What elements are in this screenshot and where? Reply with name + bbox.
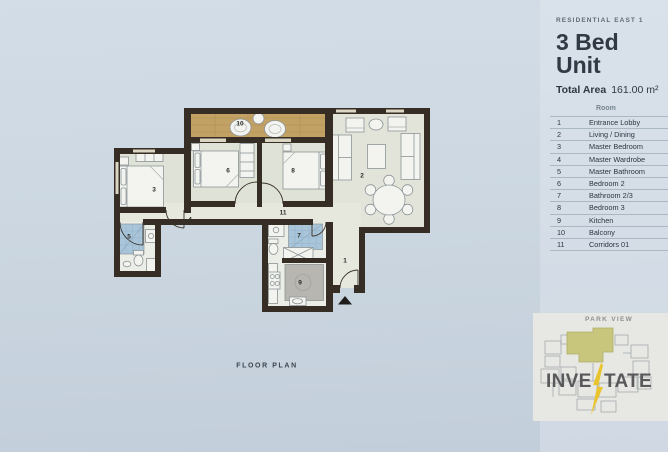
park-view-card: PARK VIEW INVE TATE xyxy=(533,313,668,421)
balcony-floor xyxy=(188,111,328,139)
room-label-master-bedroom: 3 xyxy=(152,187,156,194)
dining-table-icon xyxy=(373,185,405,215)
logo-text-left: INVE xyxy=(546,372,592,391)
plan-caption: FLOOR PLAN xyxy=(236,363,298,370)
room-label-bedroom-2: 6 xyxy=(226,168,230,175)
room-label-bedroom-3: 8 xyxy=(291,168,295,175)
sink-icon xyxy=(269,224,285,237)
room-label-corridor: 11 xyxy=(280,210,287,217)
coffee-table-icon xyxy=(368,145,386,169)
room-label-kitchen: 9 xyxy=(298,280,302,287)
room-label-master-bathroom: 5 xyxy=(127,234,131,241)
kitchen-island-icon xyxy=(285,265,324,301)
toilet-icon xyxy=(134,251,144,256)
entrance-arrow-icon xyxy=(338,296,352,305)
logo-text-right: TATE xyxy=(604,372,652,391)
room-label-entrance: 1 xyxy=(343,258,347,265)
floor-plan-drawing xyxy=(100,95,445,327)
lightning-bolt-icon xyxy=(591,363,605,415)
nightstand-icon xyxy=(192,144,200,151)
room-label-bathroom-23: 7 xyxy=(297,233,301,240)
balcony-table-icon xyxy=(253,113,264,124)
room-label-living-dining: 2 xyxy=(360,173,364,180)
wardrobe-icon xyxy=(240,144,254,178)
armchair-icon xyxy=(346,118,364,132)
dining-chair-icon xyxy=(384,175,395,186)
room-label-master-wardrobe: 4 xyxy=(188,217,192,224)
armchair-icon xyxy=(388,117,406,131)
highlighted-unit xyxy=(567,328,613,362)
basin-icon xyxy=(123,261,131,267)
brochure-page: RESIDENTIAL EAST 1 3 Bed Unit Total Area… xyxy=(0,0,668,452)
park-view-label: PARK VIEW xyxy=(585,316,633,323)
sink-icon xyxy=(146,230,157,243)
balcony-chair-icon xyxy=(265,121,286,138)
room-label-balcony: 10 xyxy=(236,121,243,128)
nightstand-icon xyxy=(283,144,291,151)
toilet-icon xyxy=(269,239,279,244)
nightstand-icon xyxy=(120,157,129,165)
side-table-icon xyxy=(369,119,383,130)
